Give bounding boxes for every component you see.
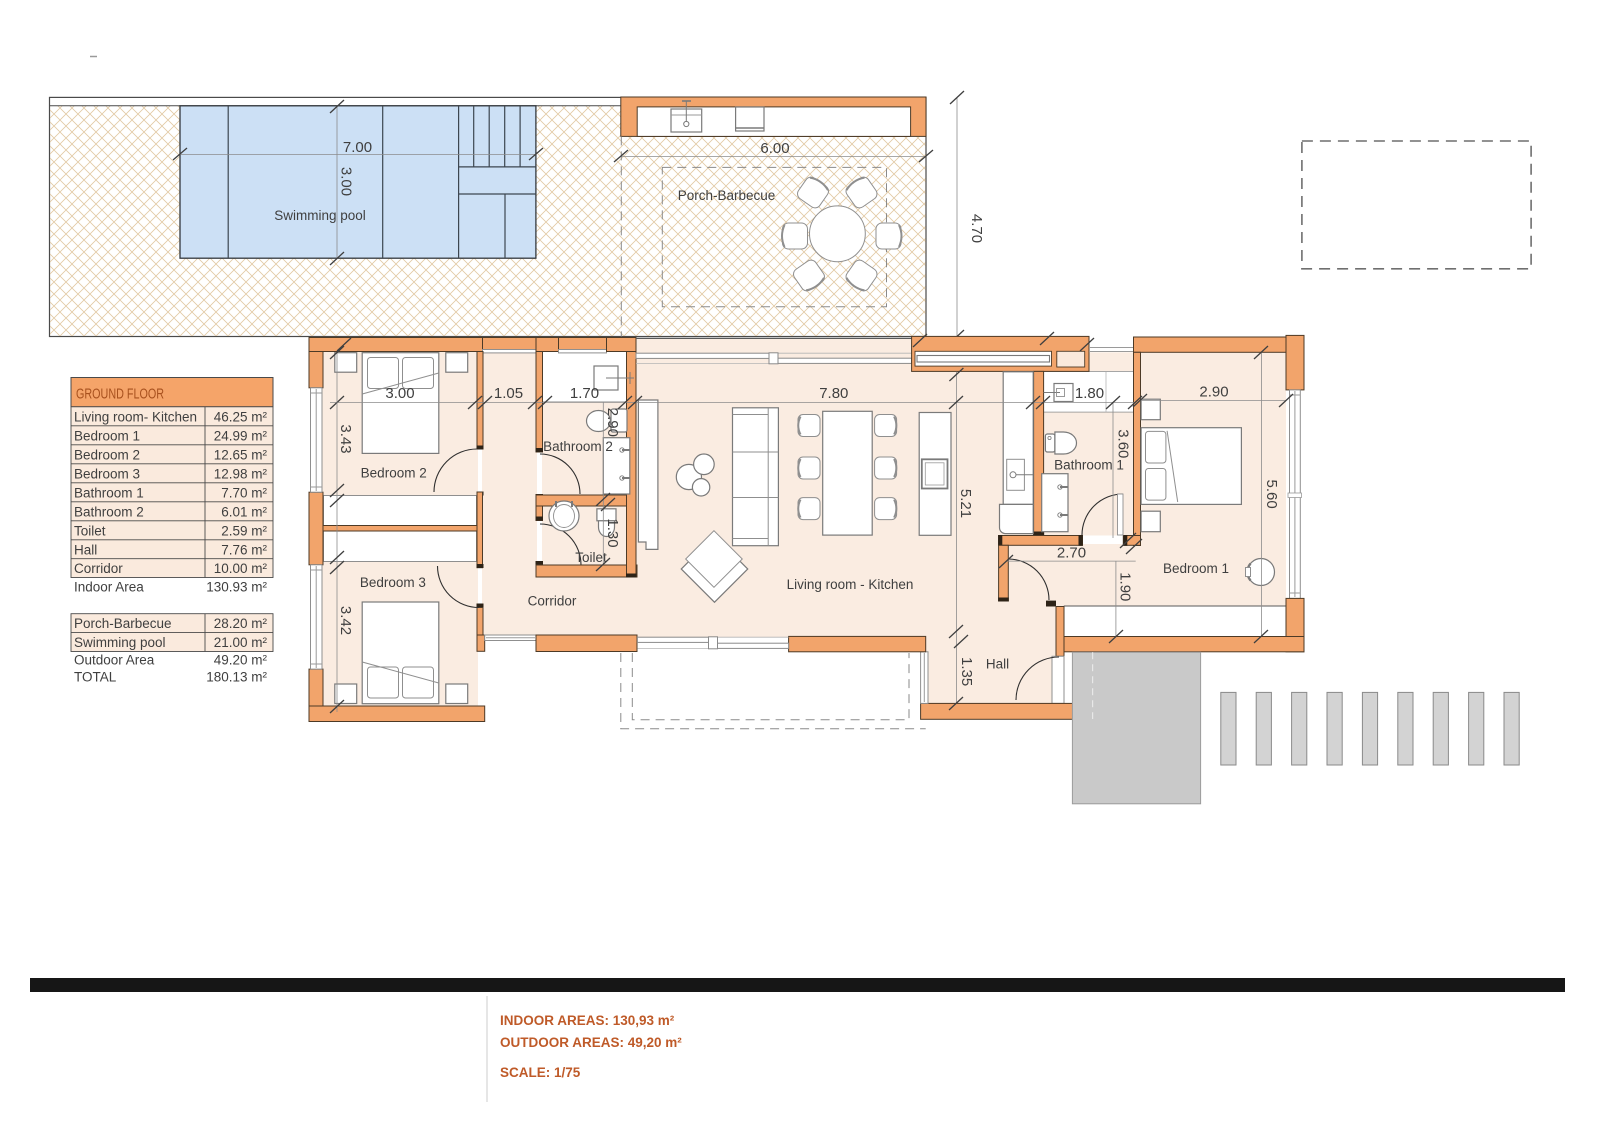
svg-text:5.21: 5.21 [957, 489, 974, 518]
svg-text:Porch-Barbecue: Porch-Barbecue [74, 616, 172, 631]
svg-text:180.13 m²: 180.13 m² [206, 670, 267, 685]
svg-text:Bedroom 3: Bedroom 3 [74, 467, 140, 482]
svg-text:OUTDOOR AREAS: 49,20 m²: OUTDOOR AREAS: 49,20 m² [500, 1035, 682, 1050]
svg-text:Bedroom 1: Bedroom 1 [1163, 561, 1229, 576]
svg-text:4.70: 4.70 [968, 214, 985, 243]
svg-text:Bathroom 1: Bathroom 1 [1054, 458, 1124, 473]
svg-text:Bathroom 1: Bathroom 1 [74, 486, 144, 501]
svg-text:7.80: 7.80 [819, 385, 848, 402]
svg-text:7.76 m²: 7.76 m² [221, 543, 267, 558]
svg-text:1.70: 1.70 [570, 385, 599, 402]
svg-text:Outdoor Area: Outdoor Area [74, 653, 155, 668]
svg-text:Hall: Hall [74, 543, 97, 558]
svg-text:Toilet: Toilet [74, 524, 106, 539]
svg-text:21.00 m²: 21.00 m² [214, 635, 268, 650]
svg-text:2.90: 2.90 [1199, 384, 1228, 401]
svg-text:Corridor: Corridor [528, 594, 577, 609]
svg-text:Porch-Barbecue: Porch-Barbecue [678, 188, 776, 203]
svg-text:49.20 m²: 49.20 m² [214, 653, 268, 668]
svg-text:3.60: 3.60 [1115, 429, 1132, 458]
svg-text:Bedroom 2: Bedroom 2 [74, 448, 140, 463]
svg-text:Swimming pool: Swimming pool [74, 635, 166, 650]
svg-text:Living room- Kitchen: Living room- Kitchen [74, 410, 197, 425]
svg-text:5.60: 5.60 [1263, 479, 1280, 508]
svg-text:46.25 m²: 46.25 m² [214, 410, 268, 425]
svg-text:28.20 m²: 28.20 m² [214, 616, 268, 631]
svg-text:INDOOR AREAS: 130,93 m²: INDOOR AREAS: 130,93 m² [500, 1013, 675, 1028]
svg-text:7.00: 7.00 [343, 139, 372, 156]
svg-text:24.99 m²: 24.99 m² [214, 429, 268, 444]
svg-text:SCALE: 1/75: SCALE: 1/75 [500, 1065, 581, 1080]
svg-text:10.00 m²: 10.00 m² [214, 561, 268, 576]
svg-text:Bedroom 3: Bedroom 3 [360, 575, 426, 590]
svg-text:12.98 m²: 12.98 m² [214, 467, 268, 482]
svg-text:Hall: Hall [986, 657, 1009, 672]
svg-text:1.90: 1.90 [1117, 572, 1134, 601]
svg-text:7.70 m²: 7.70 m² [221, 486, 267, 501]
svg-text:3.00: 3.00 [385, 385, 414, 402]
svg-text:Swimming pool: Swimming pool [274, 208, 366, 223]
svg-text:Toilet: Toilet [575, 550, 607, 565]
svg-text:Bathroom 2: Bathroom 2 [74, 505, 144, 520]
svg-text:Bathroom 2: Bathroom 2 [543, 439, 613, 454]
svg-text:GROUND FLOOR: GROUND FLOOR [76, 386, 164, 403]
svg-text:3.00: 3.00 [338, 167, 355, 196]
svg-text:TOTAL: TOTAL [74, 670, 117, 685]
svg-text:2.70: 2.70 [1057, 545, 1086, 562]
svg-text:2.59 m²: 2.59 m² [221, 524, 267, 539]
svg-text:6.01 m²: 6.01 m² [221, 505, 267, 520]
svg-text:1.80: 1.80 [1075, 385, 1104, 402]
svg-text:2.90: 2.90 [604, 408, 621, 437]
svg-text:1.30: 1.30 [604, 518, 621, 547]
svg-text:1.05: 1.05 [494, 385, 523, 402]
svg-text:3.43: 3.43 [337, 424, 354, 453]
svg-text:Bedroom 1: Bedroom 1 [74, 429, 140, 444]
svg-text:130.93 m²: 130.93 m² [206, 580, 267, 595]
svg-text:3.42: 3.42 [337, 606, 354, 635]
svg-text:12.65 m²: 12.65 m² [214, 448, 268, 463]
svg-text:Living room - Kitchen: Living room - Kitchen [787, 577, 914, 592]
svg-text:Corridor: Corridor [74, 561, 123, 576]
svg-text:Indoor Area: Indoor Area [74, 580, 144, 595]
svg-text:6.00: 6.00 [760, 140, 789, 157]
svg-text:1.35: 1.35 [958, 657, 975, 686]
svg-text:Bedroom 2: Bedroom 2 [361, 466, 427, 481]
